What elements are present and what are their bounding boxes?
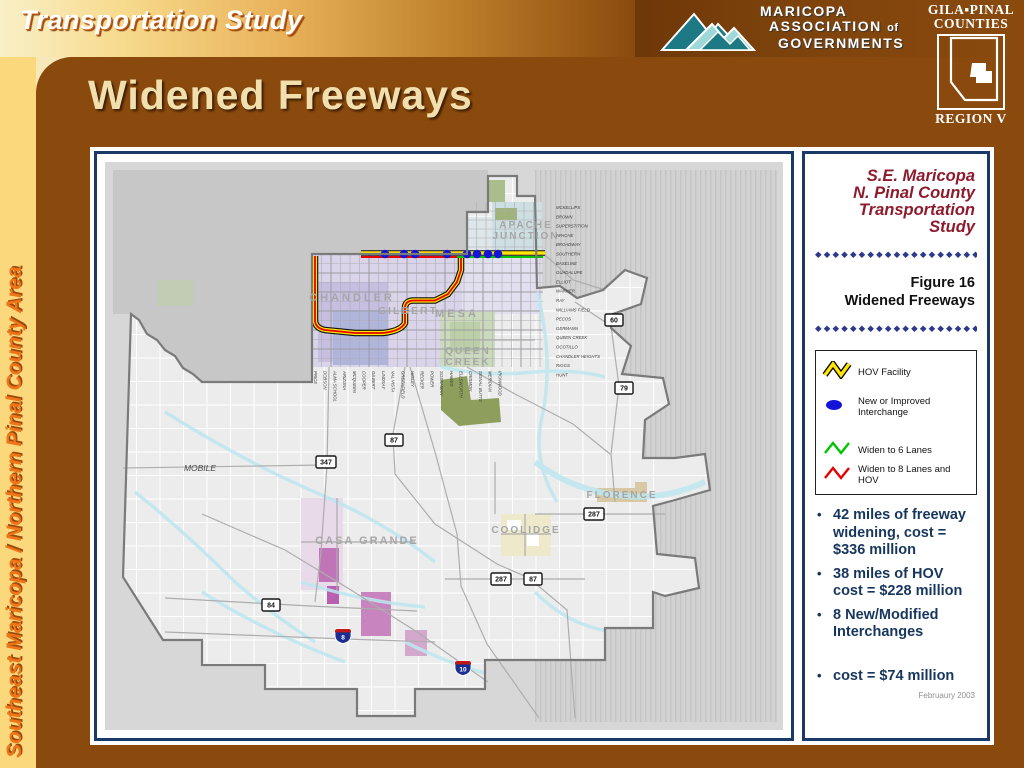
street-label: ALMA SCHOOL <box>332 370 337 402</box>
bullet-cost-text: cost = $74 million <box>833 668 975 686</box>
street-label: PRICE <box>313 371 318 384</box>
street-label: DOBSON <box>323 371 328 391</box>
gila-line2: COUNTIES <box>925 17 1017 31</box>
city-florence: FLORENCE <box>587 490 658 501</box>
shield-60: 60 <box>605 314 623 326</box>
street-label: SIGNAL BUTTE <box>478 371 483 402</box>
shield-79: 79 <box>615 382 633 394</box>
shield-i8: 8 <box>335 629 351 644</box>
bullet-widening: • 42 miles of freeway widening, cost = $… <box>817 507 975 560</box>
city-apache-junction2: JUNCTION <box>492 231 559 242</box>
legend-row-interchange: New or Improved Interchange <box>822 396 970 418</box>
street-label: ELLSWORTH <box>459 371 464 399</box>
vertical-area-label: Southeast Maricopa / Northern Pinal Coun… <box>3 140 27 758</box>
street-label: HUNT <box>556 372 568 377</box>
study-title-line3: Transportation <box>815 202 975 219</box>
legend-row-hov: HOV Facility <box>822 361 970 384</box>
eight-lane-zigzag-icon <box>822 465 858 486</box>
figure-caption: Figure 16 Widened Freeways <box>815 274 977 310</box>
street-label: SOSSAMAN <box>439 371 444 396</box>
bullet-hov: • 38 miles of HOV cost = $228 million <box>817 566 975 601</box>
transportation-study-label: Transportation Study <box>20 5 303 36</box>
street-label: POWER <box>429 371 434 387</box>
street-label: BROWN <box>556 214 573 219</box>
street-label: HAWES <box>449 371 454 387</box>
street-label: SUPERSTITION <box>556 224 589 229</box>
bullet-interchanges-text: 8 New/Modified Interchanges <box>833 607 975 642</box>
city-queen-creek: QUEEN <box>445 346 491 357</box>
svg-text:79: 79 <box>620 386 628 393</box>
street-label: MERIDIAN <box>488 371 493 393</box>
street-label: CRISMON <box>468 371 473 392</box>
svg-text:84: 84 <box>267 603 275 610</box>
street-label: COOPER <box>362 371 367 390</box>
shield-i10: 10 <box>455 661 471 676</box>
street-label: RIGGS <box>556 363 570 368</box>
legend-label-6lanes: Widen to 6 Lanes <box>858 445 932 456</box>
six-lane-zigzag-icon <box>822 440 858 461</box>
gila-line1: GILA▪PINAL <box>925 3 1017 17</box>
diamond-divider: ◆◆◆◆◆◆◆◆◆◆◆◆◆◆◆◆◆◆◆◆ <box>815 249 977 260</box>
map-panel: APACHE JUNCTION CHANDLER GILBERT MESA QU… <box>90 147 798 745</box>
svg-text:287: 287 <box>495 577 507 584</box>
map-legend: HOV Facility New or Improved Interchange… <box>815 350 977 495</box>
figure-number: Figure 16 <box>815 274 975 292</box>
shield-84: 84 <box>262 599 280 611</box>
street-label: MCKELLIPS <box>556 205 580 210</box>
street-label: GUADALUPE <box>556 270 583 275</box>
legend-label-interchange: New or Improved Interchange <box>858 396 958 418</box>
svg-text:347: 347 <box>320 460 332 467</box>
mag-line3: GOVERNMENTS <box>778 36 904 51</box>
bullet-dot: • <box>817 607 833 642</box>
bullet-dot: • <box>817 566 833 601</box>
info-panel-frame: S.E. Maricopa N. Pinal County Transporta… <box>802 151 990 741</box>
street-label: APACHE <box>555 233 573 238</box>
shield-87b: 87 <box>524 573 542 585</box>
city-apache-junction: APACHE <box>499 220 552 231</box>
street-label: BASELINE <box>556 261 577 266</box>
park-patch <box>157 280 193 306</box>
date-label: Februaury 2003 <box>815 691 977 700</box>
legend-label-hov: HOV Facility <box>858 367 911 378</box>
street-label: WARNER <box>556 289 575 294</box>
bullet-hov-text: 38 miles of HOV cost = $228 million <box>833 566 975 601</box>
street-label: GERMANN <box>556 326 579 331</box>
shield-287b: 287 <box>491 573 511 585</box>
svg-text:60: 60 <box>610 318 618 325</box>
street-label: ARIZONA <box>342 370 347 390</box>
legend-row-8lanes: Widen to 8 Lanes and HOV <box>822 464 970 486</box>
legend-label-8lanes: Widen to 8 Lanes and HOV <box>858 464 970 486</box>
street-label: HIGLEY <box>410 371 415 388</box>
map-frame: APACHE JUNCTION CHANDLER GILBERT MESA QU… <box>94 151 794 741</box>
street-label: OCOTILLO <box>556 345 578 350</box>
study-title: S.E. Maricopa N. Pinal County Transporta… <box>815 168 977 236</box>
bullet-dot: • <box>817 507 833 560</box>
street-label: GREENFIELD <box>400 371 405 398</box>
hov-zigzag-icon <box>822 361 858 384</box>
street-label: WILLIAMS FIELD <box>556 307 590 312</box>
page-title: Widened Freeways <box>88 72 473 119</box>
bullet-interchanges: • 8 New/Modified Interchanges <box>817 607 975 642</box>
street-label: MCQUEEN <box>352 371 357 394</box>
info-panel: S.E. Maricopa N. Pinal County Transporta… <box>798 147 994 745</box>
street-label: GILBERT <box>371 371 376 390</box>
street-label: BROADWAY <box>556 242 582 247</box>
gila-pinal-logo: GILA▪PINAL COUNTIES REGION V <box>925 3 1017 126</box>
mag-logo-text: MARICOPA ASSOCIATION of GOVERNMENTS <box>760 4 904 51</box>
street-label: LINDSAY <box>381 371 386 390</box>
city-mesa: MESA <box>435 308 479 320</box>
street-label: IRONWOOD <box>497 371 502 396</box>
street-label: QUEEN CREEK <box>556 335 588 340</box>
shield-287: 287 <box>584 508 604 520</box>
mag-logo: MARICOPA ASSOCIATION of GOVERNMENTS <box>660 4 904 52</box>
bullet-widening-text: 42 miles of freeway widening, cost = $33… <box>833 507 975 560</box>
arizona-shape-icon <box>941 36 1001 104</box>
city-chandler: CHANDLER <box>309 292 395 304</box>
study-title-line2: N. Pinal County <box>815 185 975 202</box>
legend-row-6lanes: Widen to 6 Lanes <box>822 440 970 461</box>
mag-line1: MARICOPA <box>760 4 904 19</box>
diamond-divider2: ◆◆◆◆◆◆◆◆◆◆◆◆◆◆◆◆◆◆◆◆ <box>815 323 977 334</box>
street-label: CHANDLER HEIGHTS <box>556 354 600 359</box>
svg-text:10: 10 <box>459 667 467 674</box>
study-area-map: APACHE JUNCTION CHANDLER GILBERT MESA QU… <box>105 162 783 730</box>
city-gilbert: GILBERT <box>378 305 438 317</box>
street-label: SOUTHERN <box>556 252 581 257</box>
city-queen-creek2: CREEK <box>445 357 490 368</box>
svg-text:87: 87 <box>390 438 398 445</box>
study-title-line1: S.E. Maricopa <box>815 168 975 185</box>
city-mobile: MOBILE <box>184 463 216 473</box>
study-title-line4: Study <box>815 219 975 236</box>
svg-text:8: 8 <box>341 635 345 642</box>
interchange-dot-icon <box>822 398 858 417</box>
stats-bullets: • 42 miles of freeway widening, cost = $… <box>815 507 977 685</box>
shield-347: 347 <box>316 456 336 468</box>
svg-text:87: 87 <box>529 577 537 584</box>
street-label: PECOS <box>556 317 571 322</box>
svg-text:287: 287 <box>588 512 600 519</box>
city-casa-grande: CASA GRANDE <box>315 535 419 547</box>
city-coolidge: COOLIDGE <box>491 525 560 536</box>
figure-title: Widened Freeways <box>815 292 975 310</box>
street-label: RAY <box>556 298 566 303</box>
bullet-cost: • cost = $74 million <box>817 668 975 686</box>
bullet-dot: • <box>817 668 833 686</box>
mag-mountains-icon <box>660 4 756 52</box>
slide: { "header": { "eyebrow": "Transportation… <box>0 0 1024 768</box>
shield-87: 87 <box>385 434 403 446</box>
gila-region-label: REGION V <box>925 112 1017 126</box>
mag-line2: ASSOCIATION of <box>769 19 904 36</box>
street-label: RECKER <box>420 371 425 389</box>
gila-region-box <box>937 34 1005 110</box>
street-label: ELLIOT <box>556 279 571 284</box>
street-label: VAL VISTA <box>391 371 396 392</box>
